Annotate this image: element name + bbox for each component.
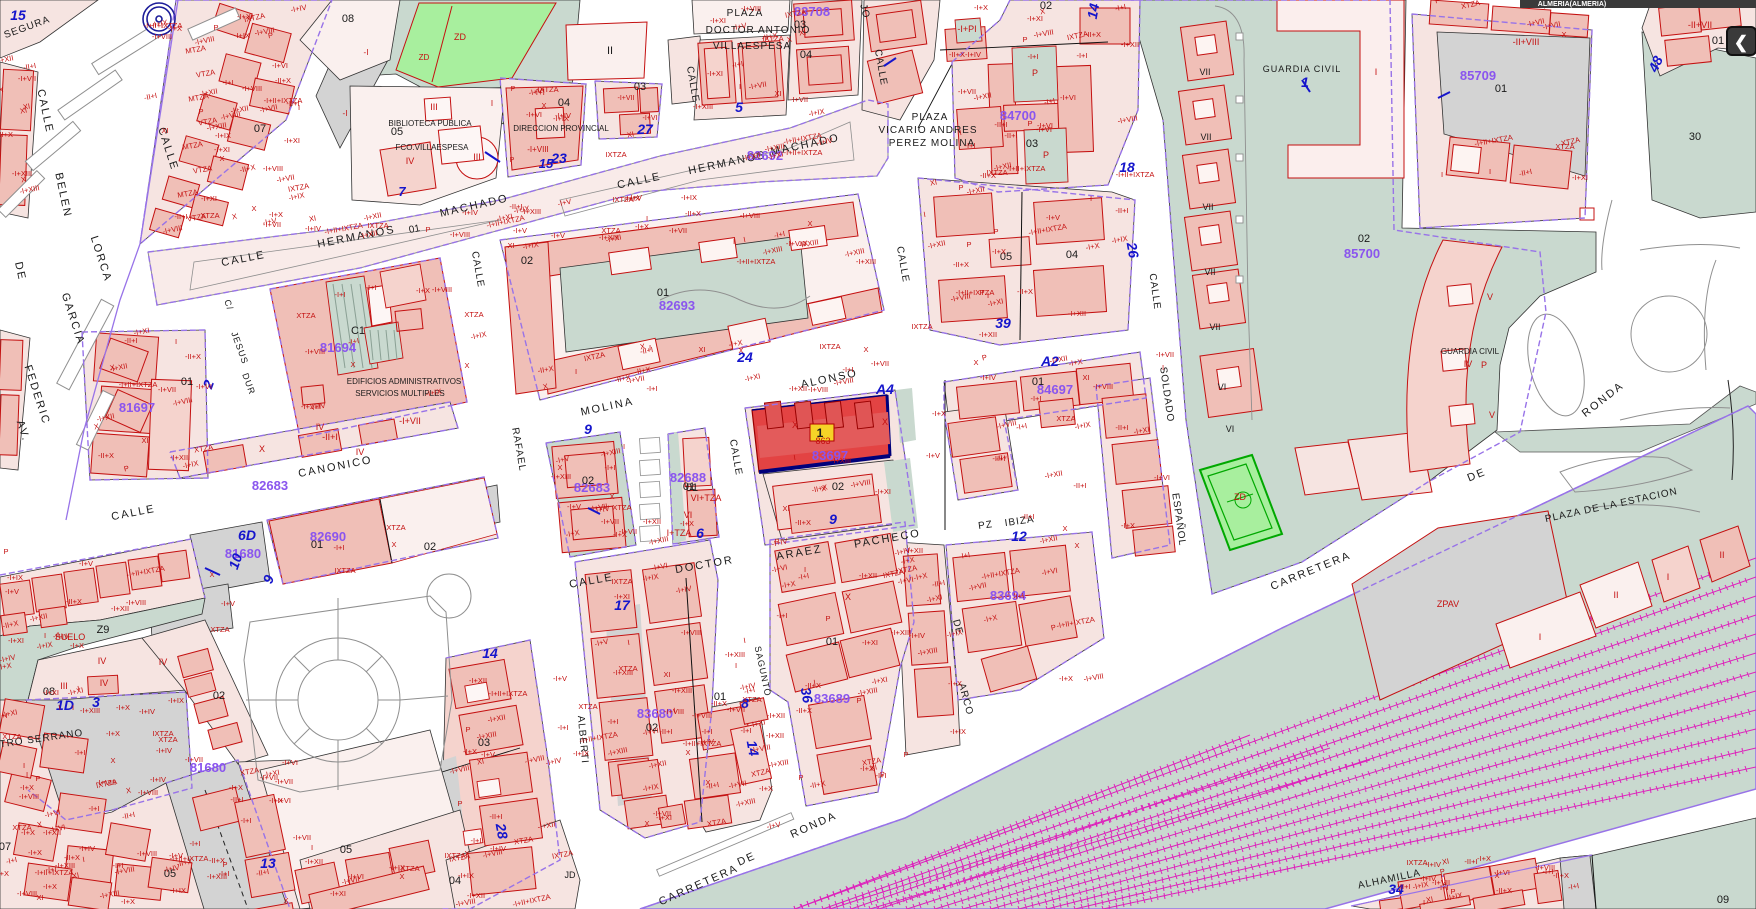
svg-text:A4: A4 <box>875 381 894 397</box>
svg-text:05: 05 <box>391 126 403 138</box>
svg-text:-I+IX: -I+IX <box>215 131 231 140</box>
svg-text:ZD: ZD <box>1234 492 1246 502</box>
svg-text:-I+XI: -I+XI <box>237 12 253 21</box>
svg-text:30: 30 <box>1689 131 1701 143</box>
svg-text:-I+XII: -I+XII <box>305 857 323 866</box>
svg-text:-I+VIII: -I+VIII <box>17 889 37 898</box>
svg-text:-I+II+IXTZA: -I+II+IXTZA <box>489 689 528 698</box>
svg-text:ZD: ZD <box>419 53 430 62</box>
svg-text:-II+I: -II+I <box>659 727 672 736</box>
svg-text:P: P <box>511 86 516 93</box>
svg-text:IV: IV <box>100 678 109 688</box>
svg-text:-I+VIII: -I+VIII <box>741 4 761 13</box>
svg-text:-I+XII: -I+XII <box>1121 40 1139 49</box>
svg-text:-I+I: -I+I <box>842 365 853 374</box>
svg-text:-I+IX: -I+IX <box>950 727 966 736</box>
svg-text:85709: 85709 <box>1460 68 1496 83</box>
svg-text:XTZA: XTZA <box>1056 414 1075 423</box>
svg-text:-I+II+IXTZA: -I+II+IXTZA <box>784 148 823 157</box>
svg-text:9: 9 <box>584 421 592 437</box>
svg-text:81697: 81697 <box>119 400 155 415</box>
svg-text:01: 01 <box>657 287 669 299</box>
svg-text:-I+V: -I+V <box>628 193 642 202</box>
svg-text:-I+II+IXTZA: -I+II+IXTZA <box>1116 170 1155 179</box>
svg-text:X: X <box>738 346 743 355</box>
svg-text:-I+I: -I+I <box>1012 591 1024 602</box>
svg-text:-I+VII: -I+VII <box>1156 350 1174 359</box>
svg-text:1: 1 <box>817 426 824 440</box>
svg-text:-I+VI: -I+VI <box>348 872 364 881</box>
svg-text:-I+VI: -I+VI <box>1036 125 1052 134</box>
svg-text:-I+I: -I+I <box>607 717 618 726</box>
svg-text:-II+X: -II+X <box>0 869 9 878</box>
svg-text:XTZA: XTZA <box>464 310 483 319</box>
svg-text:-I+II+IXTZA: -I+II+IXTZA <box>737 257 776 266</box>
svg-text:P: P <box>1032 68 1038 78</box>
svg-text:-I+XII: -I+XII <box>469 676 487 685</box>
svg-text:-I+X: -I+X <box>70 641 84 650</box>
svg-text:02: 02 <box>213 690 225 702</box>
svg-text:-I+I: -I+I <box>875 771 886 780</box>
svg-text:-I+XI: -I+XI <box>43 688 59 697</box>
svg-text:P: P <box>1481 360 1487 370</box>
svg-text:X: X <box>1062 524 1067 533</box>
svg-text:-I+I: -I+I <box>333 543 344 552</box>
svg-text:I: I <box>1090 194 1092 203</box>
svg-text:P: P <box>425 225 430 234</box>
svg-text:X: X <box>1561 30 1566 39</box>
svg-text:-I+I: -I+I <box>347 336 359 347</box>
svg-text:-I+X: -I+X <box>635 222 649 231</box>
svg-text:-I+IV: -I+IV <box>150 775 166 784</box>
svg-text:02: 02 <box>832 481 844 493</box>
svg-text:XTZA: XTZA <box>742 695 761 704</box>
svg-text:-I+IX: -I+IX <box>573 749 589 758</box>
svg-text:X: X <box>399 872 404 881</box>
svg-text:X: X <box>0 85 4 94</box>
svg-text:I: I <box>735 661 737 670</box>
svg-text:-I+VIII: -I+VIII <box>305 347 325 356</box>
svg-text:-I+XI: -I+XI <box>614 592 630 601</box>
svg-text:82693: 82693 <box>659 298 695 313</box>
svg-text:X: X <box>259 444 265 454</box>
svg-text:-I+XI: -I+XI <box>1027 14 1043 23</box>
svg-text:-I+V: -I+V <box>513 226 527 235</box>
svg-text:IXTZA: IXTZA <box>1406 858 1427 867</box>
svg-text:P: P <box>979 288 984 297</box>
svg-text:-I+VI: -I+VI <box>196 382 212 391</box>
svg-text:-I+V: -I+V <box>926 451 940 460</box>
svg-text:I: I <box>23 761 25 770</box>
svg-text:IV: IV <box>159 657 168 667</box>
svg-text:XI: XI <box>161 126 168 135</box>
svg-text:02: 02 <box>424 541 436 553</box>
svg-text:-I+VIII: -I+VIII <box>740 211 760 220</box>
svg-text:X: X <box>792 420 798 430</box>
svg-text:X: X <box>973 358 978 367</box>
svg-text:-I+IV: -I+IV <box>79 844 95 853</box>
svg-text:-I+X: -I+X <box>680 519 694 528</box>
svg-text:-I+VII: -I+VII <box>158 385 176 394</box>
svg-text:XTZA: XTZA <box>2 732 21 741</box>
svg-text:27: 27 <box>636 121 654 137</box>
svg-text:I: I <box>161 21 163 30</box>
svg-text:-I+VIII: -I+VIII <box>692 711 712 720</box>
svg-text:-I+II+IXTZA: -I+II+IXTZA <box>119 380 158 389</box>
svg-text:04: 04 <box>800 49 812 61</box>
svg-text:15: 15 <box>10 7 26 23</box>
svg-text:P: P <box>213 23 218 32</box>
svg-text:-I+I: -I+I <box>74 748 85 757</box>
svg-text:-I+VI: -I+VI <box>272 61 288 70</box>
svg-text:-I+X: -I+X <box>932 409 946 418</box>
svg-text:P: P <box>966 240 971 249</box>
svg-text:-I+VII: -I+VII <box>399 416 421 426</box>
svg-text:X: X <box>464 849 469 858</box>
svg-text:V: V <box>1489 410 1495 420</box>
svg-text:-I+I: -I+I <box>222 78 233 87</box>
svg-text:-II+X: -II+X <box>953 260 969 269</box>
svg-text:-I+I: -I+I <box>88 804 99 813</box>
svg-text:-I+V: -I+V <box>221 599 235 608</box>
svg-text:IXTZA: IXTZA <box>334 566 355 575</box>
svg-text:-I+I: -I+I <box>470 836 481 845</box>
svg-text:-I+IV: -I+IV <box>156 746 172 755</box>
svg-text:XI: XI <box>1082 373 1089 382</box>
svg-text:P: P <box>1434 0 1441 5</box>
svg-text:-I+XII: -I+XII <box>979 330 997 339</box>
svg-text:-I+I: -I+I <box>1567 881 1579 892</box>
svg-text:P: P <box>198 107 203 116</box>
svg-text:-I+XIII: -I+XIII <box>551 472 571 481</box>
svg-text:-I+I: -I+I <box>604 463 615 472</box>
svg-text:05: 05 <box>340 844 352 856</box>
svg-text:VII: VII <box>1200 132 1211 142</box>
svg-text:X: X <box>882 417 888 427</box>
svg-text:-I+IX: -I+IX <box>389 863 405 872</box>
svg-text:-I+IX: -I+IX <box>681 193 697 202</box>
svg-text:XTZA: XTZA <box>386 523 405 532</box>
svg-text:-I+VIII: -I+VIII <box>527 145 549 154</box>
svg-text:I: I <box>1489 167 1491 176</box>
svg-text:X: X <box>1494 871 1499 880</box>
svg-text:39: 39 <box>995 315 1011 331</box>
svg-text:I: I <box>175 337 177 346</box>
svg-text:X: X <box>685 748 690 757</box>
svg-text:-I+IX: -I+IX <box>170 886 186 895</box>
svg-text:I: I <box>804 565 806 574</box>
svg-text:XTZA: XTZA <box>158 735 177 744</box>
svg-text:IV: IV <box>316 422 325 432</box>
svg-text:-I+V: -I+V <box>79 559 93 568</box>
svg-text:-I+IV: -I+IV <box>305 224 321 233</box>
svg-text:III: III <box>473 152 481 162</box>
svg-text:01: 01 <box>826 636 838 648</box>
svg-text:-I+X: -I+X <box>121 897 135 906</box>
svg-text:-II+VII: -II+VII <box>1688 20 1712 30</box>
svg-text:-I+I: -I+I <box>964 141 975 150</box>
svg-text:-I+II+IXTZA: -I+II+IXTZA <box>264 96 303 105</box>
svg-text:-I+VIII: -I+VIII <box>138 788 158 797</box>
svg-text:X: X <box>283 896 288 905</box>
svg-text:VI+TZA: VI+TZA <box>691 493 722 503</box>
svg-text:XI: XI <box>141 436 148 445</box>
svg-text:-I+VIII: -I+VIII <box>786 239 806 248</box>
svg-text:-I+XI: -I+XI <box>656 813 672 822</box>
svg-text:-I+I: -I+I <box>334 290 345 299</box>
svg-text:P: P <box>825 614 830 623</box>
svg-text:-I+X: -I+X <box>106 729 120 738</box>
svg-text:I: I <box>1375 67 1378 77</box>
svg-text:-II+I: -II+I <box>1073 481 1086 490</box>
svg-text:VII: VII <box>1199 67 1210 77</box>
svg-text:-I+XII: -I+XII <box>111 604 129 613</box>
svg-text:-I+XI: -I+XI <box>710 16 726 25</box>
svg-text:P: P <box>457 799 462 808</box>
svg-text:-I+XI: -I+XI <box>214 145 230 154</box>
svg-text:-I+VII: -I+VII <box>293 833 311 842</box>
svg-text:I: I <box>1539 632 1542 642</box>
svg-text:-I+XIII: -I+XIII <box>725 650 745 659</box>
svg-text:-I+I: -I+I <box>958 550 970 561</box>
svg-text:-II+I: -II+I <box>174 212 187 221</box>
svg-text:-I+VI: -I+VI <box>1060 93 1076 102</box>
svg-text:ZD: ZD <box>454 32 466 42</box>
svg-text:-I+XIII: -I+XIII <box>599 233 619 242</box>
svg-text:-I+IX: -I+IX <box>234 31 250 40</box>
svg-text:P: P <box>1022 35 1027 44</box>
svg-text:X: X <box>464 361 469 370</box>
svg-text:P: P <box>35 774 40 783</box>
svg-text:-I+XI: -I+XI <box>875 487 891 496</box>
svg-text:IXTZA: IXTZA <box>605 150 626 159</box>
svg-text:I: I <box>491 99 493 108</box>
svg-text:-I+X: -I+X <box>269 796 283 805</box>
svg-text:-I+VII: -I+VII <box>790 95 808 104</box>
svg-text:01: 01 <box>1712 35 1724 47</box>
svg-text:04: 04 <box>1066 249 1078 261</box>
svg-text:XTZA: XTZA <box>296 311 315 320</box>
svg-text:-II+X: -II+X <box>795 518 811 527</box>
svg-text:-I+XI: -I+XI <box>284 136 300 145</box>
svg-text:-II+I: -II+I <box>322 432 338 442</box>
svg-text:07: 07 <box>0 841 11 853</box>
svg-text:X: X <box>807 219 812 228</box>
svg-text:26: 26 <box>1124 240 1143 259</box>
svg-text:-I+IX: -I+IX <box>7 573 23 582</box>
svg-text:-II+X: -II+X <box>98 451 114 460</box>
svg-text:-II+I: -II+I <box>1397 882 1410 891</box>
svg-text:08: 08 <box>342 13 354 25</box>
svg-text:-I+XIII: -I+XIII <box>856 257 876 266</box>
svg-text:III: III <box>60 681 68 691</box>
svg-text:-I+VIII: -I+VIII <box>152 32 172 41</box>
svg-text:-II+VIII: -II+VIII <box>1513 37 1540 47</box>
svg-text:PLAZA: PLAZA <box>912 112 949 123</box>
svg-text:-I+XII: -I+XII <box>1068 309 1086 318</box>
svg-text:-I+I: -I+I <box>1015 421 1027 432</box>
svg-text:-I: -I <box>364 48 369 57</box>
svg-text:-II+I: -II+I <box>1115 423 1128 432</box>
svg-text:I: I <box>72 703 74 712</box>
svg-text:-I+XII: -I+XII <box>859 571 877 580</box>
svg-text:VI: VI <box>1226 424 1235 434</box>
svg-text:IV: IV <box>356 447 365 457</box>
svg-text:-I+X: -I+X <box>416 286 430 295</box>
svg-text:I: I <box>1667 572 1670 582</box>
svg-text:03: 03 <box>1026 138 1038 150</box>
svg-text:-II+I: -II+I <box>124 336 137 345</box>
svg-text:-I+XII: -I+XII <box>766 731 784 740</box>
svg-text:9: 9 <box>829 511 837 527</box>
svg-text:DIRECCION PROVINCIAL: DIRECCION PROVINCIAL <box>513 124 609 133</box>
svg-text:01: 01 <box>1032 376 1044 388</box>
svg-text:85700: 85700 <box>1344 246 1380 261</box>
svg-text:-I: -I <box>343 109 348 118</box>
svg-text:IXTZA: IXTZA <box>911 322 932 331</box>
svg-text:-II+X: -II+X <box>1017 287 1033 296</box>
svg-text:-I+XIII: -I+XIII <box>80 706 100 715</box>
svg-text:-I+X: -I+X <box>948 679 962 688</box>
svg-text:II: II <box>1719 550 1724 560</box>
svg-text:-I+VIII: -I+VIII <box>137 849 157 858</box>
svg-text:-II+I: -II+I <box>1464 857 1477 866</box>
svg-text:-I+VII: -I+VII <box>727 705 745 714</box>
svg-text:P: P <box>510 157 515 164</box>
svg-text:I: I <box>733 237 735 246</box>
svg-text:-I+X: -I+X <box>43 882 57 891</box>
svg-text:VII: VII <box>1204 267 1215 277</box>
svg-text:-I+X: -I+X <box>992 247 1006 256</box>
svg-text:-I+VII: -I+VII <box>958 87 976 96</box>
svg-text:01: 01 <box>181 376 193 388</box>
svg-text:P: P <box>798 773 803 782</box>
svg-text:XTZA: XTZA <box>1555 142 1574 151</box>
svg-text:❮: ❮ <box>1734 33 1748 53</box>
svg-text:X: X <box>110 756 115 765</box>
svg-text:-II+I: -II+I <box>230 795 243 804</box>
svg-text:-I+XIII: -I+XIII <box>693 102 713 111</box>
svg-text:ALMERIA(ALMERIA): ALMERIA(ALMERIA) <box>1538 1 1606 8</box>
svg-text:XI: XI <box>782 504 789 513</box>
svg-text:-I+V: -I+V <box>1046 213 1060 222</box>
svg-text:-I+VII: -I+VII <box>275 777 293 786</box>
svg-text:-I+VI: -I+VI <box>282 758 298 767</box>
svg-text:07: 07 <box>254 123 266 135</box>
svg-text:-I+X: -I+X <box>1477 854 1491 863</box>
svg-text:-I+XI: -I+XI <box>201 194 217 203</box>
svg-text:-I+X: -I+X <box>759 784 773 793</box>
svg-text:-II+X: -II+X <box>1496 886 1512 895</box>
svg-text:-I+I: -I+I <box>1027 52 1038 61</box>
svg-text:SUELO: SUELO <box>55 632 86 642</box>
svg-text:-I+XIII: -I+XIII <box>12 169 32 178</box>
svg-text:P: P <box>3 547 8 556</box>
svg-text:-I+IV: -I+IV <box>980 373 996 382</box>
svg-text:-I+VIII: -I+VIII <box>808 385 828 394</box>
svg-text:-II+X: -II+X <box>980 171 996 180</box>
svg-text:P: P <box>958 183 963 192</box>
svg-text:IXTZA: IXTZA <box>611 577 632 586</box>
svg-text:PEREZ MOLINA: PEREZ MOLINA <box>889 138 975 149</box>
svg-text:VI: VI <box>1218 382 1227 392</box>
svg-text:-I+IV: -I+IV <box>139 707 155 716</box>
svg-text:-I+IV: -I+IV <box>909 631 925 640</box>
svg-text:IV: IV <box>98 656 107 666</box>
svg-text:VICARIO ANDRES: VICARIO ANDRES <box>878 125 977 136</box>
svg-text:V: V <box>1487 292 1493 302</box>
svg-text:-I+XII: -I+XII <box>467 891 485 900</box>
svg-text:-I+XII: -I+XII <box>905 546 923 555</box>
svg-text:-I+IX: -I+IX <box>458 871 474 880</box>
svg-text:VII: VII <box>1209 322 1220 332</box>
svg-text:I: I <box>739 82 741 91</box>
svg-text:III: III <box>430 102 438 112</box>
svg-text:-I+VII: -I+VII <box>1432 878 1450 887</box>
svg-text:-II+X: -II+X <box>1085 30 1101 39</box>
svg-text:-I+II+IXTZA: -I+II+IXTZA <box>35 868 74 877</box>
svg-text:7: 7 <box>398 184 406 199</box>
svg-text:02: 02 <box>1358 233 1370 245</box>
svg-text:-I+IX: -I+IX <box>553 114 569 123</box>
svg-text:XI: XI <box>774 89 781 98</box>
svg-text:-I+XI: -I+XI <box>707 69 723 78</box>
svg-text:5: 5 <box>735 99 743 115</box>
svg-text:XI: XI <box>698 345 705 354</box>
svg-text:-I+V: -I+V <box>553 674 567 683</box>
svg-text:-I+I: -I+I <box>557 723 568 732</box>
svg-text:-II+X: -II+X <box>66 597 82 606</box>
svg-text:-I+XIII: -I+XIII <box>831 456 851 465</box>
svg-text:-I+XIII: -I+XIII <box>672 686 692 695</box>
svg-text:JD: JD <box>565 870 577 880</box>
svg-text:EDIFICIOS ADMINISTRATIVOS: EDIFICIOS ADMINISTRATIVOS <box>347 377 462 386</box>
svg-text:-I+VIII: -I+VIII <box>19 792 39 801</box>
svg-text:I: I <box>311 843 313 852</box>
svg-text:-II+I: -II+I <box>509 202 522 211</box>
svg-text:-I+I: -I+I <box>776 611 787 620</box>
svg-text:XI: XI <box>663 670 670 679</box>
svg-text:II: II <box>1613 590 1618 600</box>
svg-text:GUARDIA CIVIL: GUARDIA CIVIL <box>1263 64 1342 74</box>
svg-text:02: 02 <box>582 475 594 487</box>
svg-text:-I+VII: -I+VII <box>601 517 619 526</box>
svg-text:-I+XII: -I+XII <box>767 711 785 720</box>
svg-text:I: I <box>26 770 28 779</box>
svg-text:02: 02 <box>521 255 533 267</box>
svg-text:-I+I: -I+I <box>701 727 712 736</box>
svg-text:FCO.VILLAESPESA: FCO.VILLAESPESA <box>396 143 470 152</box>
svg-text:P: P <box>1043 150 1049 160</box>
svg-text:-I+X: -I+X <box>1059 674 1073 683</box>
svg-text:-I+VIII: -I+VIII <box>681 628 701 637</box>
svg-text:I: I <box>1162 363 1164 372</box>
svg-text:II: II <box>607 45 613 57</box>
svg-text:-II+X: -II+X <box>949 50 965 59</box>
svg-text:-I+X: -I+X <box>28 848 42 857</box>
svg-text:I: I <box>575 367 577 376</box>
svg-text:X: X <box>219 154 224 163</box>
svg-text:X: X <box>391 540 396 549</box>
svg-text:PZ: PZ <box>978 519 994 532</box>
svg-text:-I+VI: -I+VI <box>1154 473 1170 482</box>
svg-text:-I+I: -I+I <box>112 861 123 870</box>
svg-text:XTZA: XTZA <box>210 625 229 634</box>
svg-text:XTZA: XTZA <box>578 702 597 711</box>
svg-text:I: I <box>623 442 625 451</box>
svg-text:15: 15 <box>539 156 554 171</box>
svg-text:28: 28 <box>493 821 512 840</box>
